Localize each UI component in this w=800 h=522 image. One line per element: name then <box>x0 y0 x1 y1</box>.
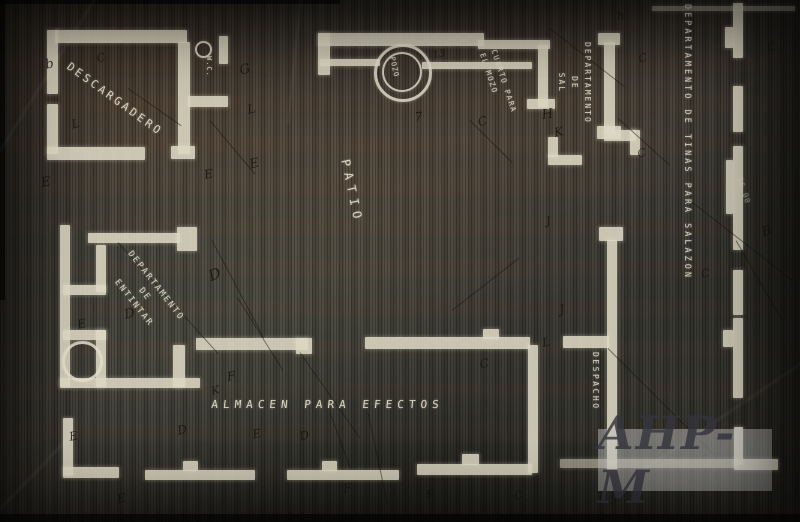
wall-segment <box>320 59 380 66</box>
wall-segment <box>604 42 615 134</box>
pencil-mark: C <box>95 50 107 65</box>
pencil-mark: 7 <box>414 109 423 124</box>
wall-segment <box>652 6 795 11</box>
wall-segment <box>88 233 180 243</box>
room-label-sal-line2: DE <box>568 42 581 124</box>
pencil-mark: h <box>616 9 625 23</box>
room-label-sal-line1: DEPARTAMENTO <box>581 42 594 124</box>
room-label-patio: PATIO <box>338 158 365 226</box>
wall-segment <box>723 330 733 347</box>
pencil-mark: E <box>203 166 214 181</box>
wall-segment <box>322 461 337 471</box>
wall-segment <box>219 36 228 64</box>
pencil-mark: F <box>342 481 353 496</box>
pencil-mark: L <box>246 101 257 116</box>
wall-segment <box>733 318 743 398</box>
wall-segment <box>733 270 743 315</box>
pencil-mark: C <box>637 51 648 66</box>
wall-segment <box>733 86 743 132</box>
wall-segment <box>422 62 532 69</box>
archive-watermark: AHP-M <box>598 429 772 491</box>
pencil-mark: C <box>766 40 777 54</box>
pencil-mark: E <box>76 316 87 332</box>
pencil-mark: 13 <box>432 48 446 61</box>
room-label-tinas-salazon: DEPARTAMENTO DE TINAS PARA SALAZON <box>682 4 692 280</box>
room-label-sal: DEPARTAMENTO DE SAL <box>555 42 594 124</box>
tub-ring <box>62 341 103 382</box>
pencil-mark: G <box>238 61 252 78</box>
pencil-mark: H <box>541 106 554 122</box>
wall-segment <box>63 467 119 478</box>
wall-segment <box>47 147 145 160</box>
room-label-entintar: DEPARTAMENTO DE ENTINTAR <box>102 248 188 341</box>
room-label-despacho: DESPACHO <box>591 352 600 411</box>
pencil-mark: B <box>760 223 774 240</box>
pencil-mark: D <box>176 422 188 438</box>
pencil-mark: L <box>541 335 551 350</box>
pencil-mark: D <box>206 264 223 285</box>
pencil-mark: C <box>700 266 711 280</box>
wall-segment <box>365 337 530 349</box>
pencil-mark: C <box>636 146 647 161</box>
pencil-mark: F <box>226 369 237 384</box>
wall-segment <box>296 338 312 354</box>
pencil-mark: E <box>116 490 127 505</box>
wall-segment <box>183 461 198 471</box>
photo-edge-bottom <box>0 514 800 522</box>
pencil-mark: J <box>545 214 552 228</box>
pencil-leader-line <box>470 120 513 163</box>
blueprint-scan: bCELGLEE137CHKCCCBJLCDDEFEDFECFEDKJCh DE… <box>0 0 800 522</box>
crease-line <box>287 0 303 123</box>
pencil-mark: F <box>425 487 436 502</box>
wall-segment <box>733 3 743 58</box>
room-label-almacen: ALMACEN PARA EFECTOS <box>211 398 445 411</box>
pencil-leader-line <box>368 412 389 505</box>
pencil-mark: E <box>251 426 262 442</box>
photo-edge-top <box>0 0 340 4</box>
room-label-sal-line3: SAL <box>555 42 568 124</box>
wall-segment <box>548 155 582 165</box>
wall-segment <box>483 329 499 339</box>
room-label-wc: W.C. <box>205 56 213 77</box>
wall-segment <box>528 345 538 473</box>
wall-segment <box>145 470 255 480</box>
pencil-mark: D <box>298 428 311 444</box>
pencil-mark: J <box>558 302 566 317</box>
wall-segment <box>177 227 197 251</box>
pencil-mark: C <box>478 356 490 372</box>
pencil-leader-line <box>300 352 361 439</box>
wall-segment <box>548 137 558 157</box>
wall-segment <box>599 227 623 241</box>
archive-watermark-text: AHP-M <box>598 406 772 514</box>
pencil-mark: L <box>70 116 81 132</box>
pencil-leader-line <box>452 258 520 311</box>
wall-segment <box>538 45 548 107</box>
wall-segment <box>462 454 479 465</box>
room-label-cuarto-mozo: CUARTO PARA EL MOZO <box>476 48 519 118</box>
wall-segment <box>726 160 733 214</box>
wall-segment <box>63 285 106 295</box>
wall-segment <box>725 27 733 48</box>
wall-segment <box>417 464 532 475</box>
wall-segment <box>171 146 195 159</box>
pencil-mark: K <box>553 124 565 140</box>
wall-segment <box>173 345 185 387</box>
pencil-leader-line <box>212 240 265 338</box>
pencil-leader-line <box>210 120 256 174</box>
wall-segment <box>563 336 609 348</box>
pencil-mark: E <box>40 174 52 190</box>
wall-segment <box>188 96 228 107</box>
pencil-mark: K <box>210 383 221 397</box>
pencil-mark: C <box>513 488 524 502</box>
